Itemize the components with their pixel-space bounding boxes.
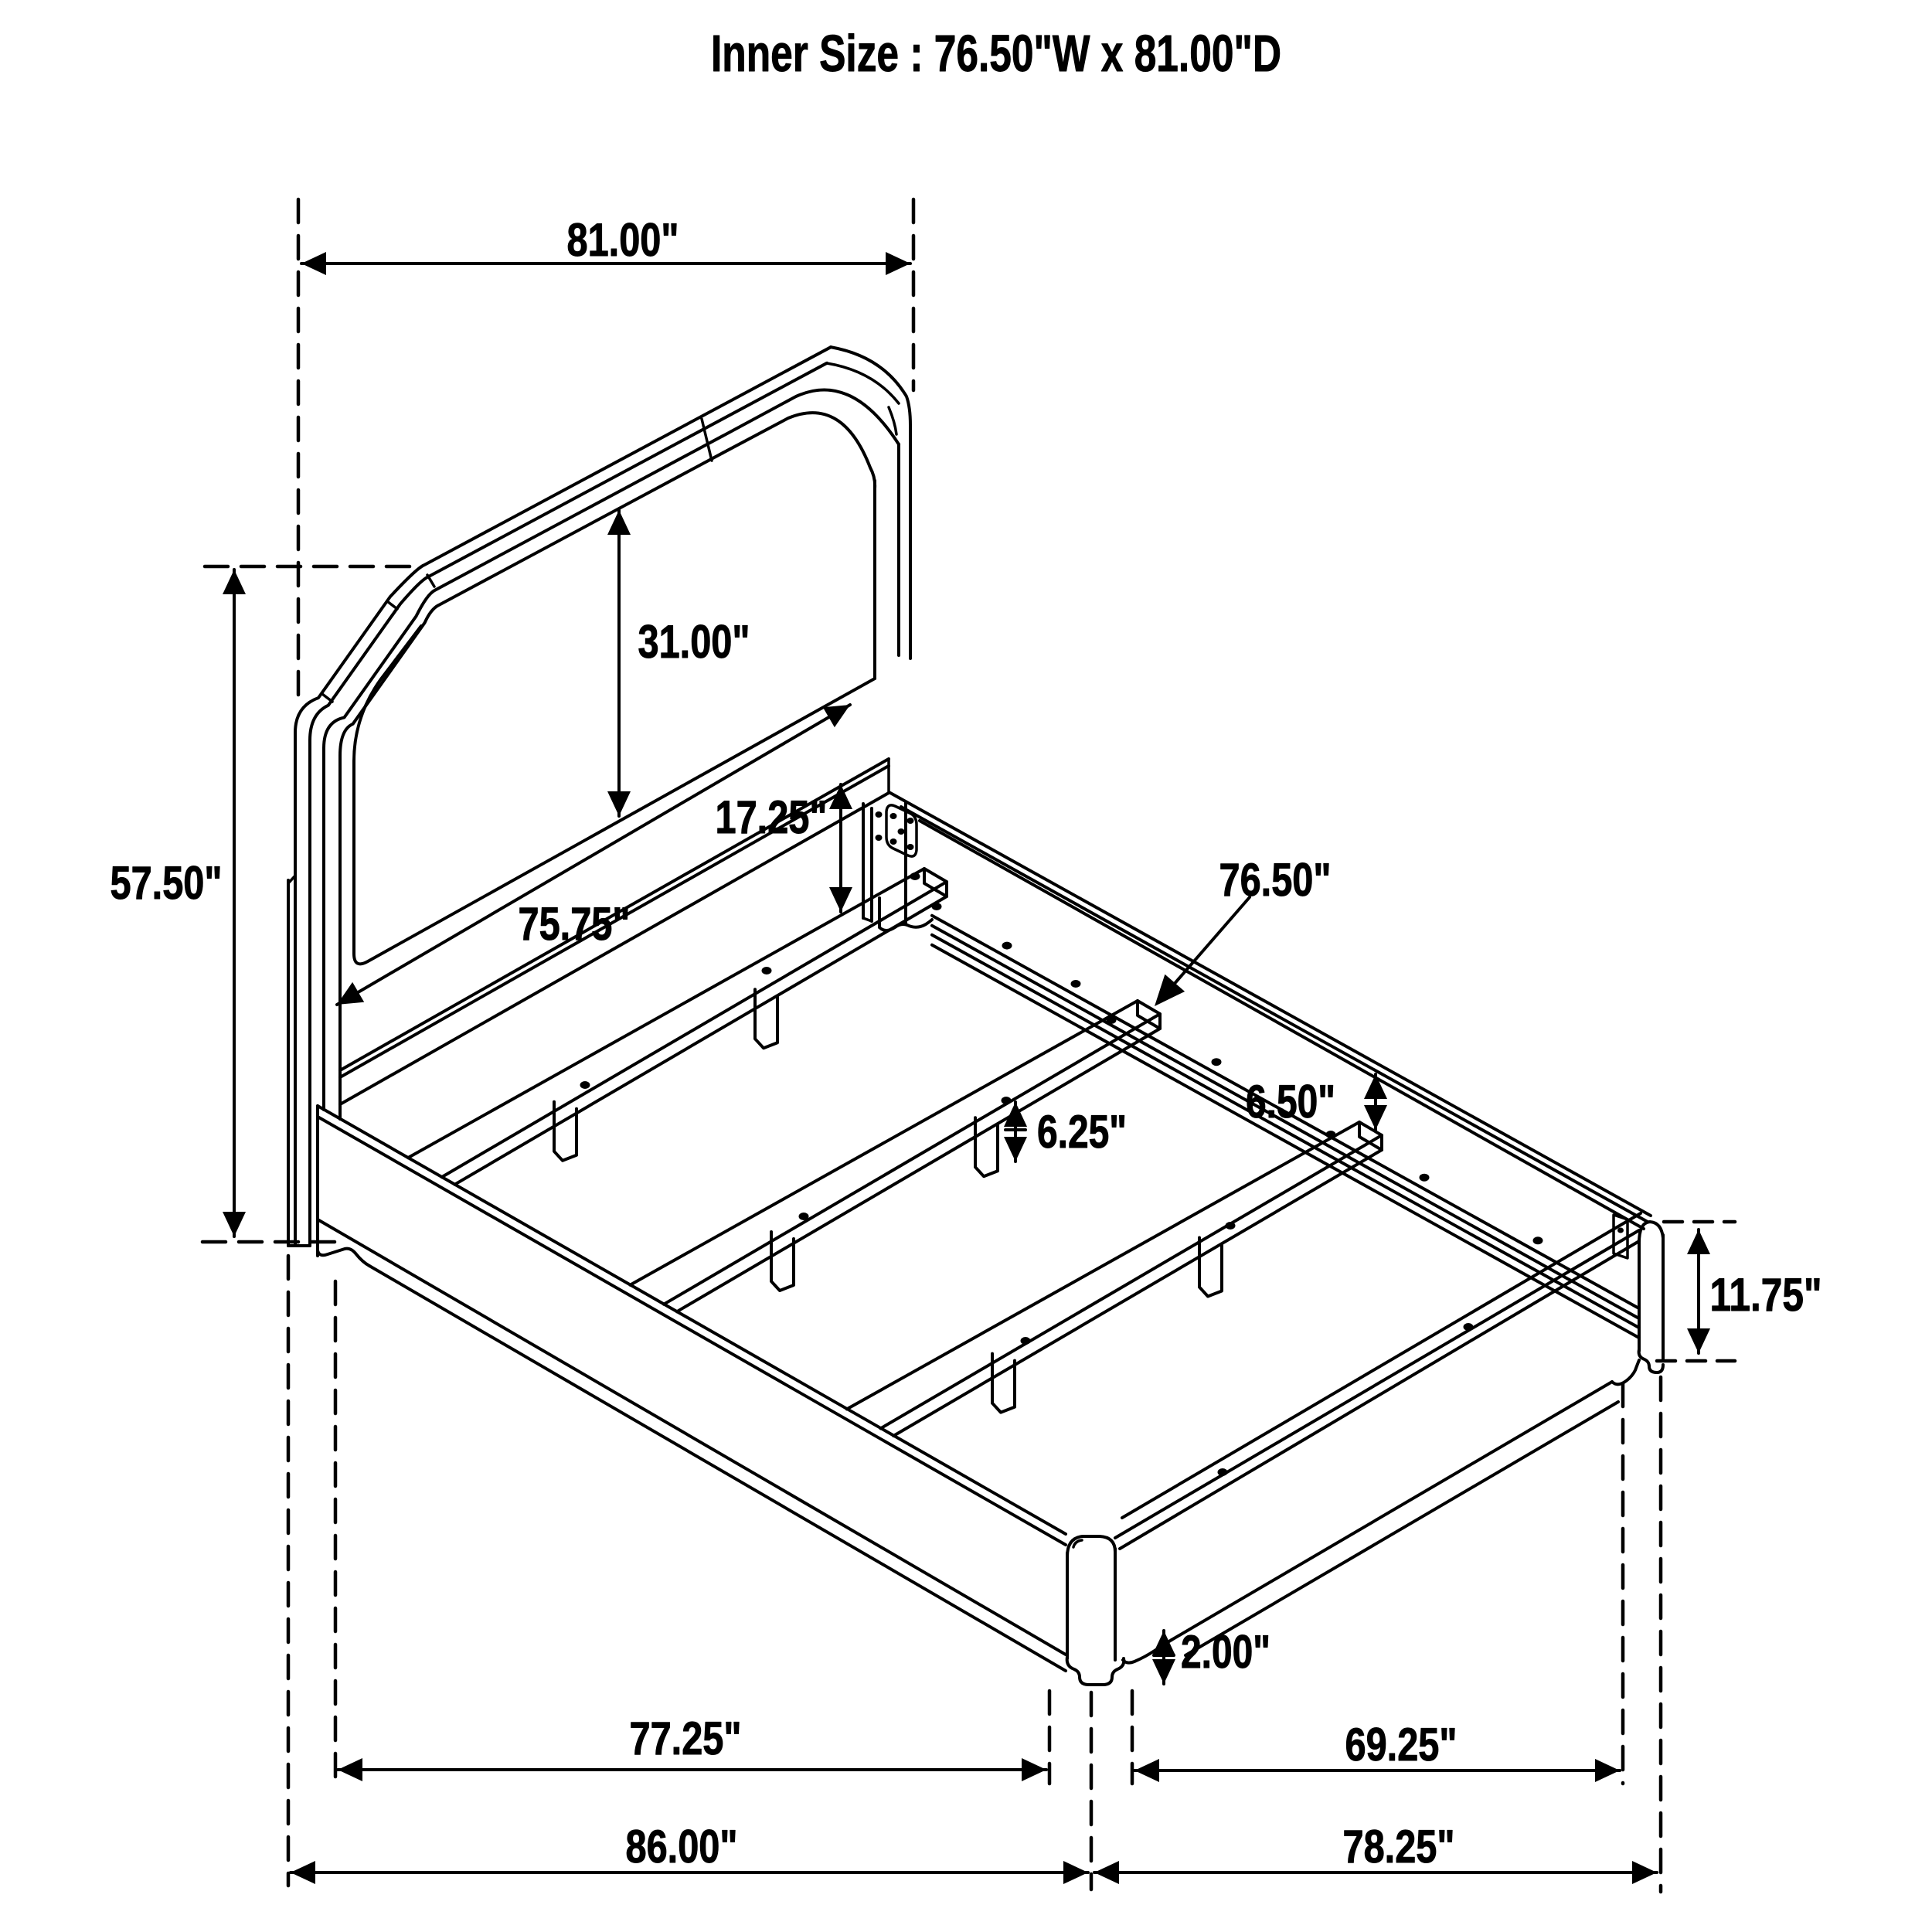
svg-text:31.00": 31.00" [638,616,750,668]
svg-text:Inner Size : 76.50"W x 81.00"D: Inner Size : 76.50"W x 81.00"D [711,25,1281,83]
svg-text:6.25": 6.25" [1037,1106,1127,1158]
svg-text:2.00": 2.00" [1181,1626,1270,1678]
svg-text:86.00": 86.00" [626,1821,738,1872]
svg-text:78.25": 78.25" [1343,1821,1455,1872]
svg-text:17.25": 17.25" [716,791,828,843]
svg-text:81.00": 81.00" [567,214,679,266]
svg-text:76.50": 76.50" [1219,854,1332,906]
svg-text:69.25": 69.25" [1345,1719,1458,1770]
svg-text:75.75": 75.75" [519,898,631,950]
svg-text:6.50": 6.50" [1246,1076,1335,1128]
svg-text:11.75": 11.75" [1710,1269,1822,1321]
svg-text:57.50": 57.50" [111,857,223,909]
svg-text:77.25": 77.25" [630,1713,742,1764]
